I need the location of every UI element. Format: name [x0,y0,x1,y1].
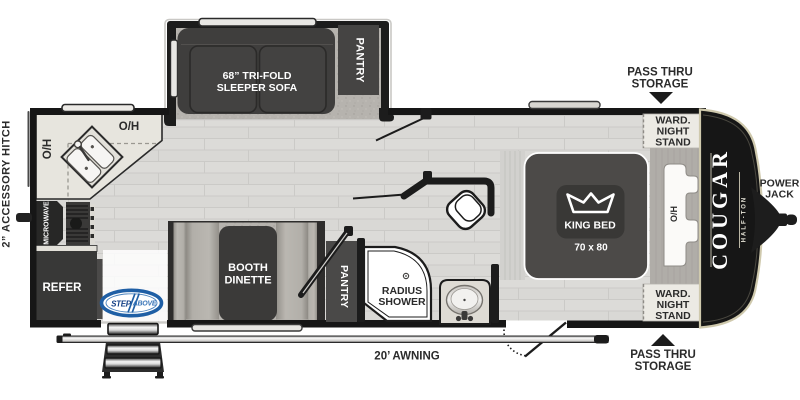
svg-text:PANTRY: PANTRY [338,265,350,308]
svg-text:STAND: STAND [655,137,691,149]
svg-text:PASS THRU: PASS THRU [627,67,693,79]
svg-text:2” ACCESSORY HITCH: 2” ACCESSORY HITCH [1,120,13,247]
svg-text:MICROWAVE: MICROWAVE [44,201,51,245]
svg-text:O/H: O/H [119,121,139,133]
svg-text:STORAGE: STORAGE [635,361,692,373]
svg-text:BOOTH: BOOTH [228,262,268,274]
svg-text:KING BED: KING BED [564,220,616,232]
svg-text:DINETTE: DINETTE [224,275,271,287]
svg-text:PASS THRU: PASS THRU [630,349,696,361]
svg-text:O/H: O/H [669,206,679,222]
svg-text:HALF-TON: HALF-TON [742,196,748,243]
svg-text:JACK: JACK [765,189,794,201]
svg-text:ABOVE: ABOVE [132,301,157,308]
svg-text:70 x 80: 70 x 80 [574,243,608,254]
svg-text:20’ AWNING: 20’ AWNING [374,351,439,363]
svg-text:REFER: REFER [43,282,83,294]
svg-text:STORAGE: STORAGE [632,79,689,91]
svg-text:68” TRI-FOLD: 68” TRI-FOLD [223,70,292,82]
svg-text:STAND: STAND [655,310,691,322]
svg-text:O/H: O/H [42,139,54,159]
svg-text:SLEEPER SOFA: SLEEPER SOFA [217,82,298,94]
svg-text:PANTRY: PANTRY [354,38,366,84]
svg-text:SHOWER: SHOWER [378,296,426,308]
svg-text:STEP: STEP [111,300,132,309]
